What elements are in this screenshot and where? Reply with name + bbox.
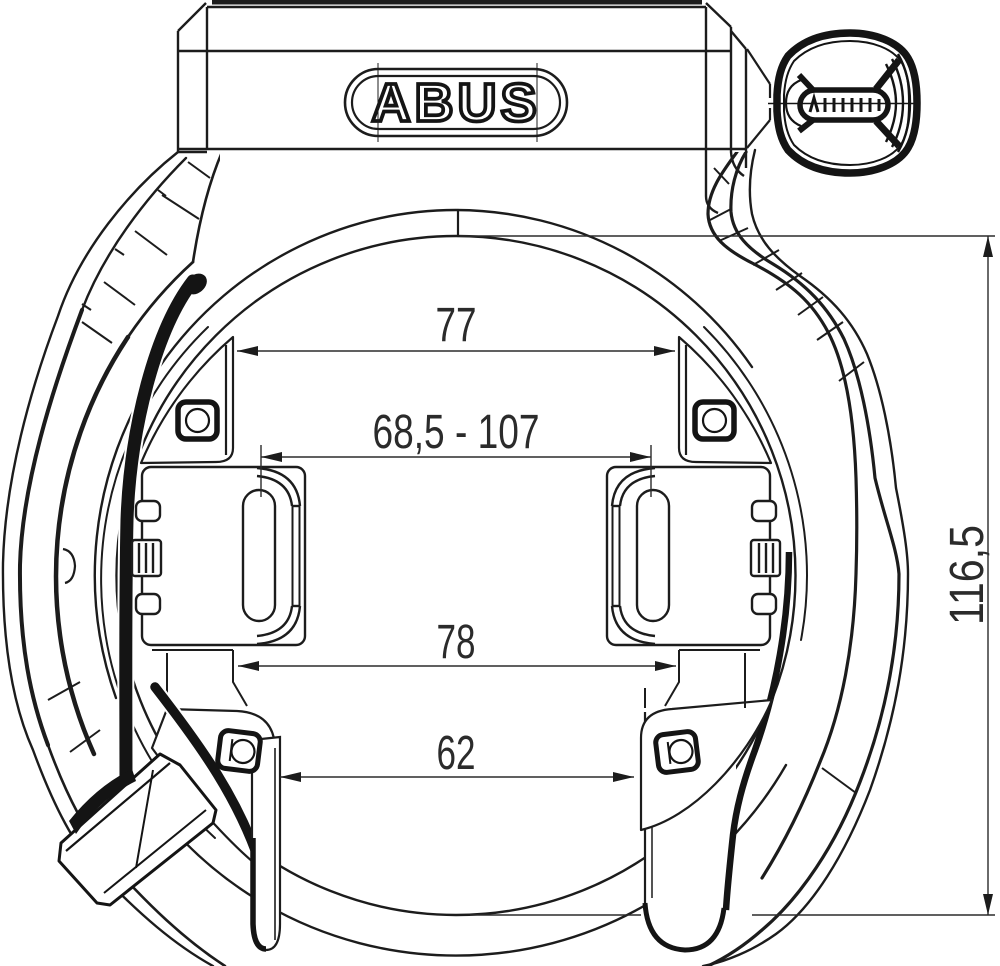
svg-text:116,5: 116,5	[941, 525, 994, 625]
svg-text:62: 62	[437, 727, 476, 780]
svg-text:77: 77	[436, 299, 477, 352]
svg-text:78: 78	[437, 616, 476, 669]
svg-text:68,5 - 107: 68,5 - 107	[373, 406, 540, 459]
svg-text:ABUS: ABUS	[371, 73, 540, 133]
